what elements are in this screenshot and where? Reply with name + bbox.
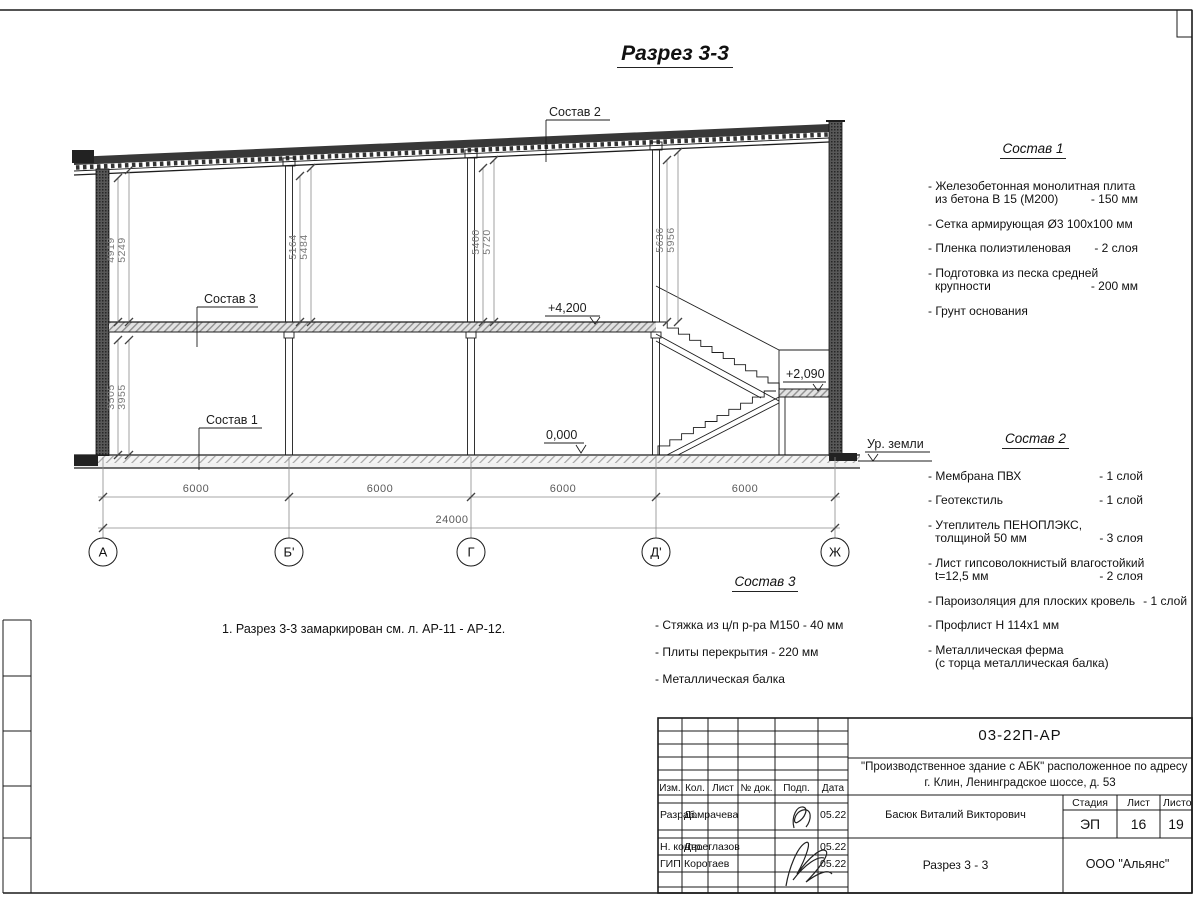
right-wall [829, 121, 842, 456]
col-data: Дата [818, 783, 848, 794]
callout-sostav1: Состав 1 [206, 413, 258, 427]
list-item: - Мембрана ПВХ- 1 слой [928, 470, 1143, 484]
axis-label-g: Г [467, 545, 474, 560]
page-title: Разрез 3-3 [560, 42, 790, 66]
sheet-label: Лист [1117, 797, 1160, 809]
project-name-line1: "Производственное здание с АБК" располож… [861, 761, 1191, 773]
spec3-title: Состав 3 [655, 575, 875, 589]
list-item: - Подготовка из песка средней крупности-… [928, 267, 1138, 294]
sheets-label: Листов [1163, 797, 1192, 809]
span-dim-2: 6000 [367, 483, 393, 495]
row1-name: Домрачева [684, 809, 738, 821]
lower-flight-steps [658, 391, 776, 455]
list-item: - Сетка армирующая Ø3 100х100 мм [928, 218, 1138, 232]
list-item: - Лист гипсоволокнистый влагостойкий t=1… [928, 557, 1143, 584]
dim-5249: 5249 [116, 237, 128, 262]
stair-landing [779, 389, 829, 397]
dim-5484: 5484 [298, 234, 310, 259]
company-name: ООО "Альянс" [1063, 857, 1192, 871]
spec2-title: Состав 2 [928, 432, 1143, 446]
roof-edge-plate [72, 150, 94, 163]
col-list: Лист [708, 783, 738, 794]
list-item: - Грунт основания [928, 305, 1138, 319]
dim-5956: 5956 [665, 227, 677, 252]
axis-label-d: Д' [650, 545, 661, 560]
list-item: - Металлическая ферма (с торца металличе… [928, 644, 1143, 671]
dim-5720: 5720 [481, 229, 493, 254]
drawing-sheet: 4919 5249 3505 3955 5164 5484 5400 5720 … [0, 0, 1200, 900]
spec1-title: Состав 1 [928, 142, 1138, 156]
elevation-2090: +2,090 [786, 367, 825, 381]
vertical-dimensions: 4919 5249 3505 3955 5164 5484 5400 5720 … [105, 148, 682, 459]
axis-label-b: Б' [283, 545, 294, 560]
stage-label: Стадия [1063, 797, 1117, 809]
left-margin-strip [3, 620, 31, 893]
list-item: - Железобетонная монолитная плита из бет… [928, 180, 1138, 207]
sheet-title: Разрез 3 - 3 [848, 858, 1063, 872]
elevation-0000: 0,000 [546, 428, 577, 442]
columns [283, 142, 662, 455]
spec3-items: - Стяжка из ц/п р-ра М150 - 40 мм - Плит… [655, 619, 875, 687]
sheets-total: 19 [1160, 816, 1192, 832]
stage-value: ЭП [1063, 816, 1117, 832]
floor-slab [109, 322, 656, 332]
roof [72, 124, 829, 175]
sheet-note: 1. Разрез 3-3 замаркирован см. л. АР-11 … [222, 622, 505, 636]
row2-name: Двоеглазов [684, 841, 740, 853]
building-section [72, 121, 932, 468]
span-dim-1: 6000 [183, 483, 209, 495]
axis-label-a: А [99, 545, 108, 560]
list-item: - Профлист Н 114х1 мм [928, 619, 1143, 633]
list-item: - Пароизоляция для плоских кровель- 1 сл… [928, 595, 1143, 609]
list-item: - Пленка полиэтиленовая- 2 слоя [928, 242, 1138, 256]
col-izm: Изм. [658, 783, 682, 794]
spec-block-sostav2: Состав 2 - Мембрана ПВХ- 1 слой - Геотек… [928, 432, 1143, 682]
row2-date: 05.22 [820, 841, 846, 853]
project-name-line2: г. Клин, Ленинградское шоссе, д. 53 [848, 777, 1192, 789]
upper-flight-steps [656, 322, 779, 389]
corner-box [1177, 10, 1192, 37]
spec2-items: - Мембрана ПВХ- 1 слой - Геотекстиль- 1 … [928, 470, 1143, 671]
list-item: - Стяжка из ц/п р-ра М150 - 40 мм [655, 619, 875, 633]
sheet-number: 16 [1117, 816, 1160, 832]
list-item: - Утеплитель ПЕНОПЛЭКС, толщиной 50 мм- … [928, 519, 1143, 546]
spec-block-sostav1: Состав 1 - Железобетонная монолитная пли… [928, 142, 1138, 329]
axis-label-zh: Ж [829, 545, 841, 560]
list-item: - Металлическая балка [655, 673, 875, 687]
col-doc: № док. [738, 783, 775, 794]
doc-code: 03-22П-АР [848, 727, 1192, 744]
approver-name: Басюк Виталий Викторович [848, 809, 1063, 821]
list-item: - Плиты перекрытия - 220 мм [655, 646, 875, 660]
spec1-items: - Железобетонная монолитная плита из бет… [928, 180, 1138, 319]
left-wall [96, 169, 109, 456]
col-podp: Подп. [775, 783, 818, 794]
spec-block-sostav3: Состав 3 - Стяжка из ц/п р-ра М150 - 40 … [655, 575, 875, 700]
dim-3955: 3955 [116, 384, 128, 409]
col-kol: Кол. [682, 783, 708, 794]
span-dim-3: 6000 [550, 483, 576, 495]
callout-sostav3: Состав 3 [204, 292, 256, 306]
span-dim-4: 6000 [732, 483, 758, 495]
row1-date: 05.22 [820, 809, 846, 821]
row3-date: 05.22 [820, 858, 846, 870]
total-dim: 24000 [435, 514, 468, 526]
list-item: - Геотекстиль- 1 слой [928, 494, 1143, 508]
row3-role: ГИП [660, 858, 681, 870]
ground-slab [74, 453, 932, 468]
signature-1 [793, 807, 810, 828]
axis-grid: 6000 6000 6000 6000 24000 А Б' Г Д' Ж [89, 457, 849, 566]
elevation-4200: +4,200 [548, 301, 587, 315]
row3-name: Коротаев [684, 858, 729, 870]
callout-sostav2: Состав 2 [549, 105, 601, 119]
ground-level-label: Ур. земли [867, 437, 924, 451]
